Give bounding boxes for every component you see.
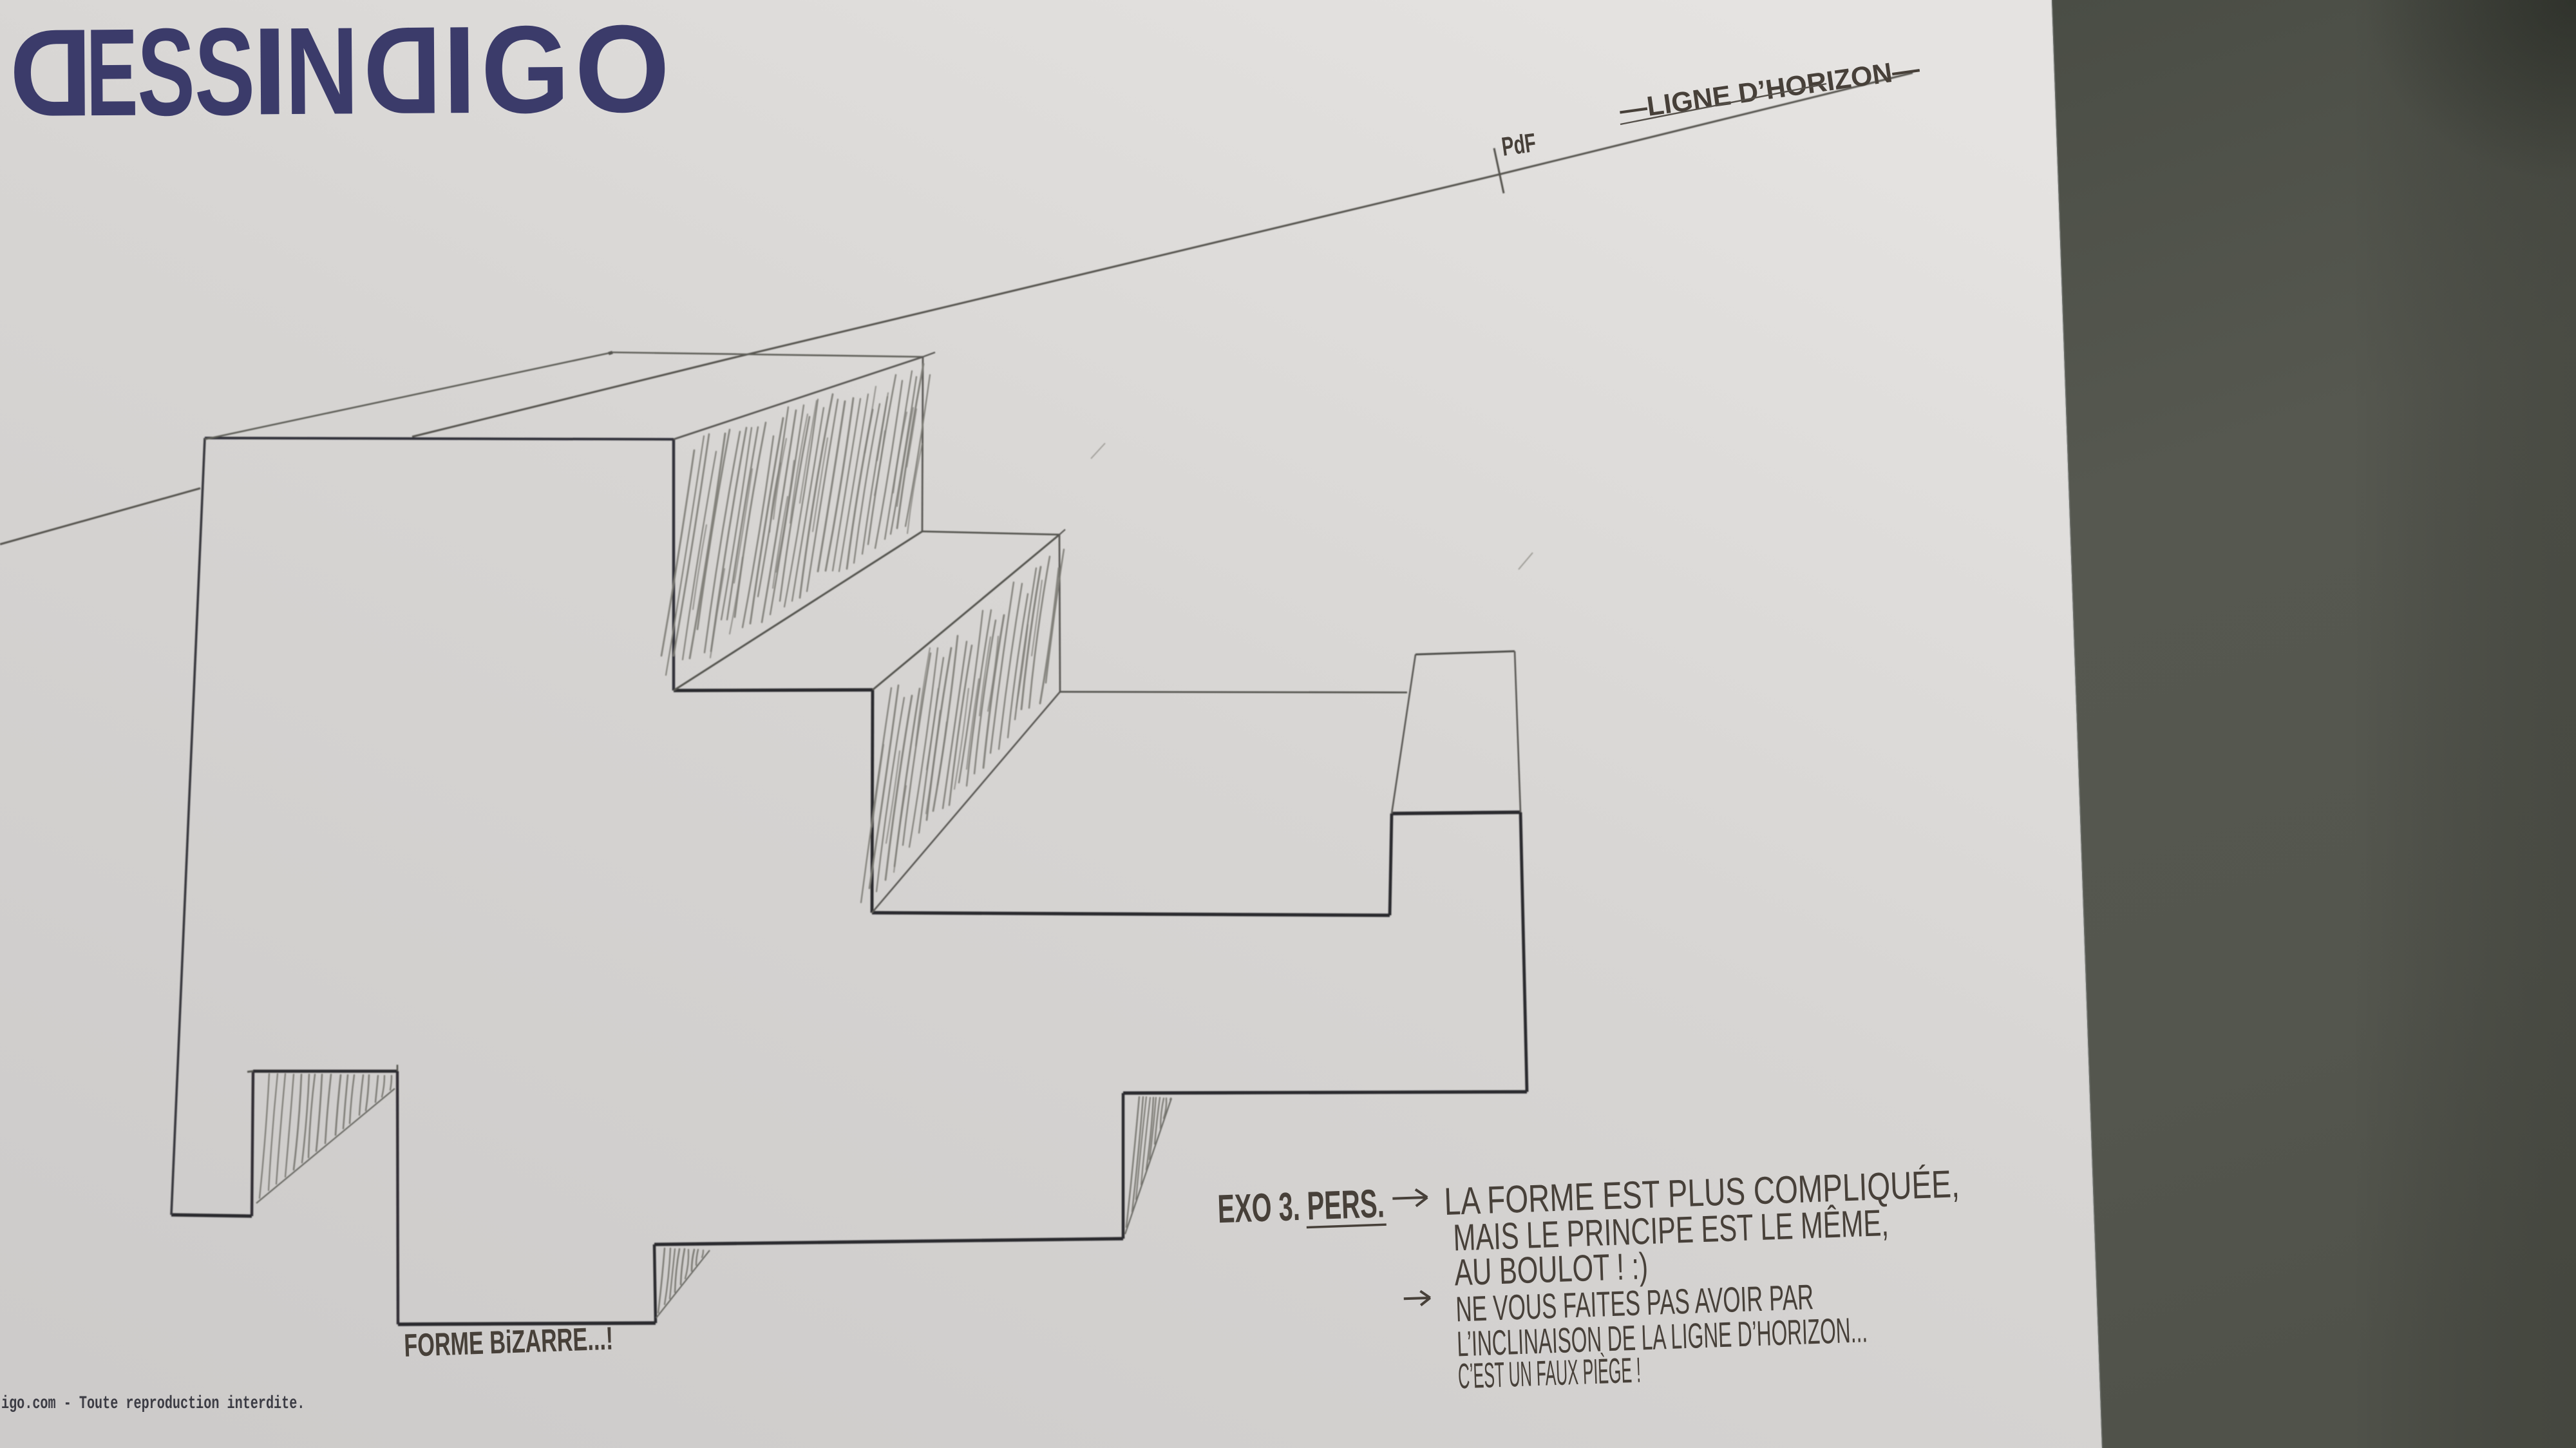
svg-text:N: N — [284, 1, 359, 140]
svg-text:FORME BiZARRE...!: FORME BiZARRE...! — [403, 1320, 614, 1364]
svg-text:EXO 3.: EXO 3. — [1217, 1185, 1301, 1232]
svg-text:D: D — [363, 0, 442, 140]
svg-text:G: G — [480, 0, 570, 139]
svg-text:D: D — [9, 3, 93, 142]
svg-text:PERS.: PERS. — [1307, 1182, 1385, 1229]
svg-text:I: I — [252, 1, 288, 140]
svg-text:igo.com - Toute reproduction i: igo.com - Toute reproduction interdite. — [1, 1394, 305, 1414]
svg-text:S: S — [137, 2, 195, 142]
svg-text:PdF: PdF — [1500, 128, 1538, 162]
svg-text:O: O — [574, 0, 670, 138]
svg-text:E: E — [86, 3, 138, 142]
svg-text:C’EST UN FAUX PIÈGE !: C’EST UN FAUX PIÈGE ! — [1457, 1351, 1642, 1397]
svg-text:I: I — [442, 0, 477, 139]
svg-text:S: S — [194, 1, 256, 141]
